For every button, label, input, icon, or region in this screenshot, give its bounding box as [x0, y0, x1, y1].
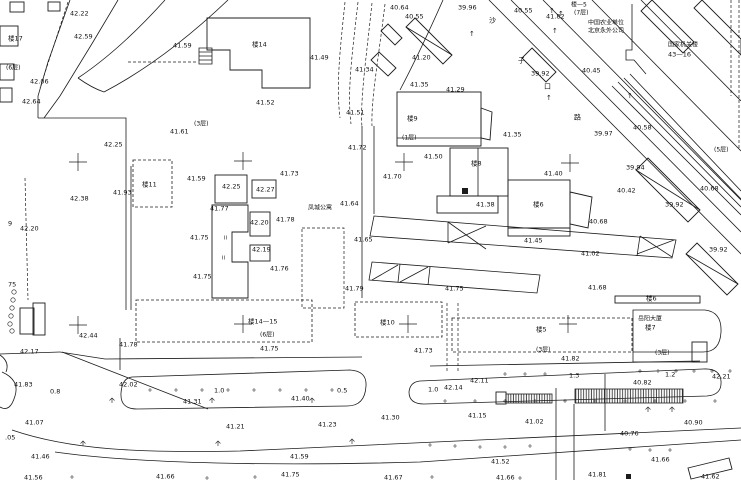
map-label: 楼14	[252, 40, 267, 49]
benchmark-arrow-icon: ↑	[469, 30, 475, 38]
solid-marker	[626, 474, 631, 479]
map-label: 40.42	[617, 187, 636, 195]
benchmark-arrow-icon: ↑	[552, 27, 558, 35]
benchmark-arrow-icon: ↑	[627, 92, 633, 100]
map-label: 42.02	[119, 381, 138, 389]
map-label: (6层)	[6, 65, 21, 72]
map-label: (3层)	[536, 347, 551, 354]
map-label: 楼9	[407, 114, 418, 123]
map-label: 楼6	[533, 200, 544, 209]
map-label: 40.90	[684, 419, 703, 427]
map-label: (7层)	[574, 10, 589, 17]
map-label: 口	[544, 83, 551, 91]
map-label: 42.17	[20, 348, 39, 356]
map-label: 1.2	[665, 371, 675, 379]
map-label: 41.46	[31, 453, 50, 461]
map-label: 41.65	[354, 236, 373, 244]
map-label: 41.81	[588, 471, 607, 479]
map-label: 42.21	[712, 373, 731, 381]
map-label: 楼6	[646, 294, 657, 303]
map-label: 41.79	[345, 285, 364, 293]
map-label: 39.94	[626, 164, 645, 172]
map-label: 41.35	[503, 131, 522, 139]
map-label: 岳阳大厦	[638, 315, 662, 323]
map-label: 40.58	[633, 124, 652, 132]
map-label: 42.25	[222, 183, 241, 191]
map-label: 41.77	[210, 205, 229, 213]
map-label: 41.59	[290, 453, 309, 461]
map-label: 42.20	[250, 219, 269, 227]
map-canvas: ↑↑↑↑↑↑42.2242.59楼17(6层)42.0642.6441.59楼1…	[0, 0, 741, 480]
map-label: 41.52	[491, 458, 510, 466]
map-label: 41.34	[355, 66, 374, 74]
map-label: 42.22	[70, 10, 89, 18]
map-label: 楼14—15	[248, 317, 278, 326]
map-label: (6层)	[260, 332, 275, 339]
map-label: 9	[8, 220, 12, 228]
map-label: II	[224, 236, 227, 242]
map-label: 42.38	[70, 195, 89, 203]
map-label: 41.51	[346, 109, 365, 117]
map-label: 楼—5	[571, 1, 587, 9]
map-label: 42.27	[256, 186, 275, 194]
map-label: 75	[8, 281, 16, 289]
map-label: 41.66	[651, 456, 670, 464]
map-label: 41.15	[468, 412, 487, 420]
map-label: 41.02	[581, 250, 600, 258]
map-label: 40.64	[390, 4, 409, 12]
map-label: 41.59	[187, 175, 206, 183]
map-label: 楼7	[645, 323, 656, 332]
map-label: 41.31	[183, 398, 202, 406]
map-label: 41.75	[281, 471, 300, 479]
map-label: 41.61	[170, 128, 189, 136]
map-label: 国家机关楼	[668, 41, 698, 49]
hatched-structure	[575, 389, 683, 403]
map-label: 39.96	[458, 4, 477, 12]
map-label: 41.83	[14, 381, 33, 389]
map-label: 41.66	[496, 474, 515, 480]
map-label: 41.49	[310, 54, 329, 62]
map-label: (1层)	[402, 135, 417, 142]
map-label: 43—16	[668, 51, 691, 59]
map-label: 40.55	[514, 7, 533, 15]
map-label: 41.21	[226, 423, 245, 431]
map-label: 41.75	[190, 234, 209, 242]
map-label: 41.38	[476, 201, 495, 209]
map-label: 0.8	[50, 388, 60, 396]
map-label: 41.73	[414, 347, 433, 355]
map-label: 1.3	[569, 372, 579, 380]
map-label: 42.19	[252, 246, 271, 254]
map-label: 41.93	[113, 189, 132, 197]
map-label: 41.82	[561, 355, 580, 363]
map-label: 42.59	[74, 33, 93, 41]
map-label: 楼11	[142, 180, 157, 189]
map-label: 41.50	[424, 153, 443, 161]
map-label: 40.55	[405, 13, 424, 21]
map-label: 42.06	[30, 78, 49, 86]
map-label: 41.23	[318, 421, 337, 429]
map-label: (3层)	[194, 121, 209, 128]
map-label: 中国农业单位	[588, 19, 624, 27]
map-label: 41.67	[384, 474, 403, 480]
map-label: 41.78	[276, 216, 295, 224]
map-label: 楼10	[380, 318, 395, 327]
solid-marker	[462, 188, 468, 194]
map-label: (5层)	[714, 147, 729, 154]
map-label: 41.20	[412, 54, 431, 62]
map-label: 42.44	[79, 332, 98, 340]
map-label: 子	[518, 57, 525, 65]
map-label: 40.68	[700, 185, 719, 193]
map-label: 41.30	[381, 414, 400, 422]
map-label: 41.62	[701, 473, 720, 480]
map-label: 楼8	[471, 159, 482, 168]
map-label: 41.68	[588, 284, 607, 292]
map-label: 41.35	[410, 81, 429, 89]
map-label: 41.02	[525, 418, 544, 426]
map-label: 41.76	[270, 265, 289, 273]
map-label: 39.92	[665, 201, 684, 209]
map-label: 40.45	[582, 67, 601, 75]
map-label: 40.76	[620, 430, 639, 438]
map-label: 41.64	[340, 200, 359, 208]
map-label: 42.25	[104, 141, 123, 149]
map-label: 41.40	[544, 170, 563, 178]
map-label: 42.20	[20, 225, 39, 233]
map-label: 41.72	[348, 144, 367, 152]
map-label: 40.82	[633, 379, 652, 387]
survey-map-page: ↑↑↑↑↑↑42.2242.59楼17(6层)42.0642.6441.59楼1…	[0, 0, 741, 480]
map-label: 41.45	[524, 237, 543, 245]
map-label: 42.11	[470, 377, 489, 385]
map-label: 41.40	[291, 395, 310, 403]
map-label: 39.97	[594, 130, 613, 138]
map-label: 41.73	[280, 170, 299, 178]
map-label: 41.70	[383, 173, 402, 181]
map-label: 42.64	[22, 98, 41, 106]
map-label: 41.75	[260, 345, 279, 353]
map-label: 41.78	[119, 341, 138, 349]
map-label: 41.29	[446, 86, 465, 94]
map-label: 路	[574, 113, 581, 122]
map-label: 41.07	[25, 419, 44, 427]
map-label: 凤城公寓	[308, 204, 332, 212]
map-label: 41.82	[546, 13, 565, 21]
map-label: 41.59	[173, 42, 192, 50]
benchmark-arrow-icon: ↑	[546, 94, 552, 102]
map-label: 北京永外公司	[588, 27, 624, 35]
map-label: 沙	[489, 17, 496, 25]
map-label: 1.0	[428, 386, 438, 394]
map-label: 41.56	[24, 474, 43, 480]
map-label: 39.92	[531, 70, 550, 78]
map-label: 41.75	[193, 273, 212, 281]
map-label: 0.5	[337, 387, 347, 395]
map-label: 41.75	[445, 285, 464, 293]
map-label: II	[222, 256, 225, 262]
map-label: 41.52	[256, 99, 275, 107]
map-label: 1.0	[214, 387, 224, 395]
hatched-structure	[506, 394, 552, 403]
map-label: 39.92	[709, 246, 728, 254]
map-label: (3层)	[655, 350, 670, 357]
map-label: 楼17	[8, 34, 23, 43]
map-label: .05	[5, 434, 15, 442]
map-label: 40.68	[589, 218, 608, 226]
map-label: 42.14	[444, 384, 463, 392]
map-label: 41.66	[156, 473, 175, 480]
map-label: 楼5	[536, 325, 547, 334]
